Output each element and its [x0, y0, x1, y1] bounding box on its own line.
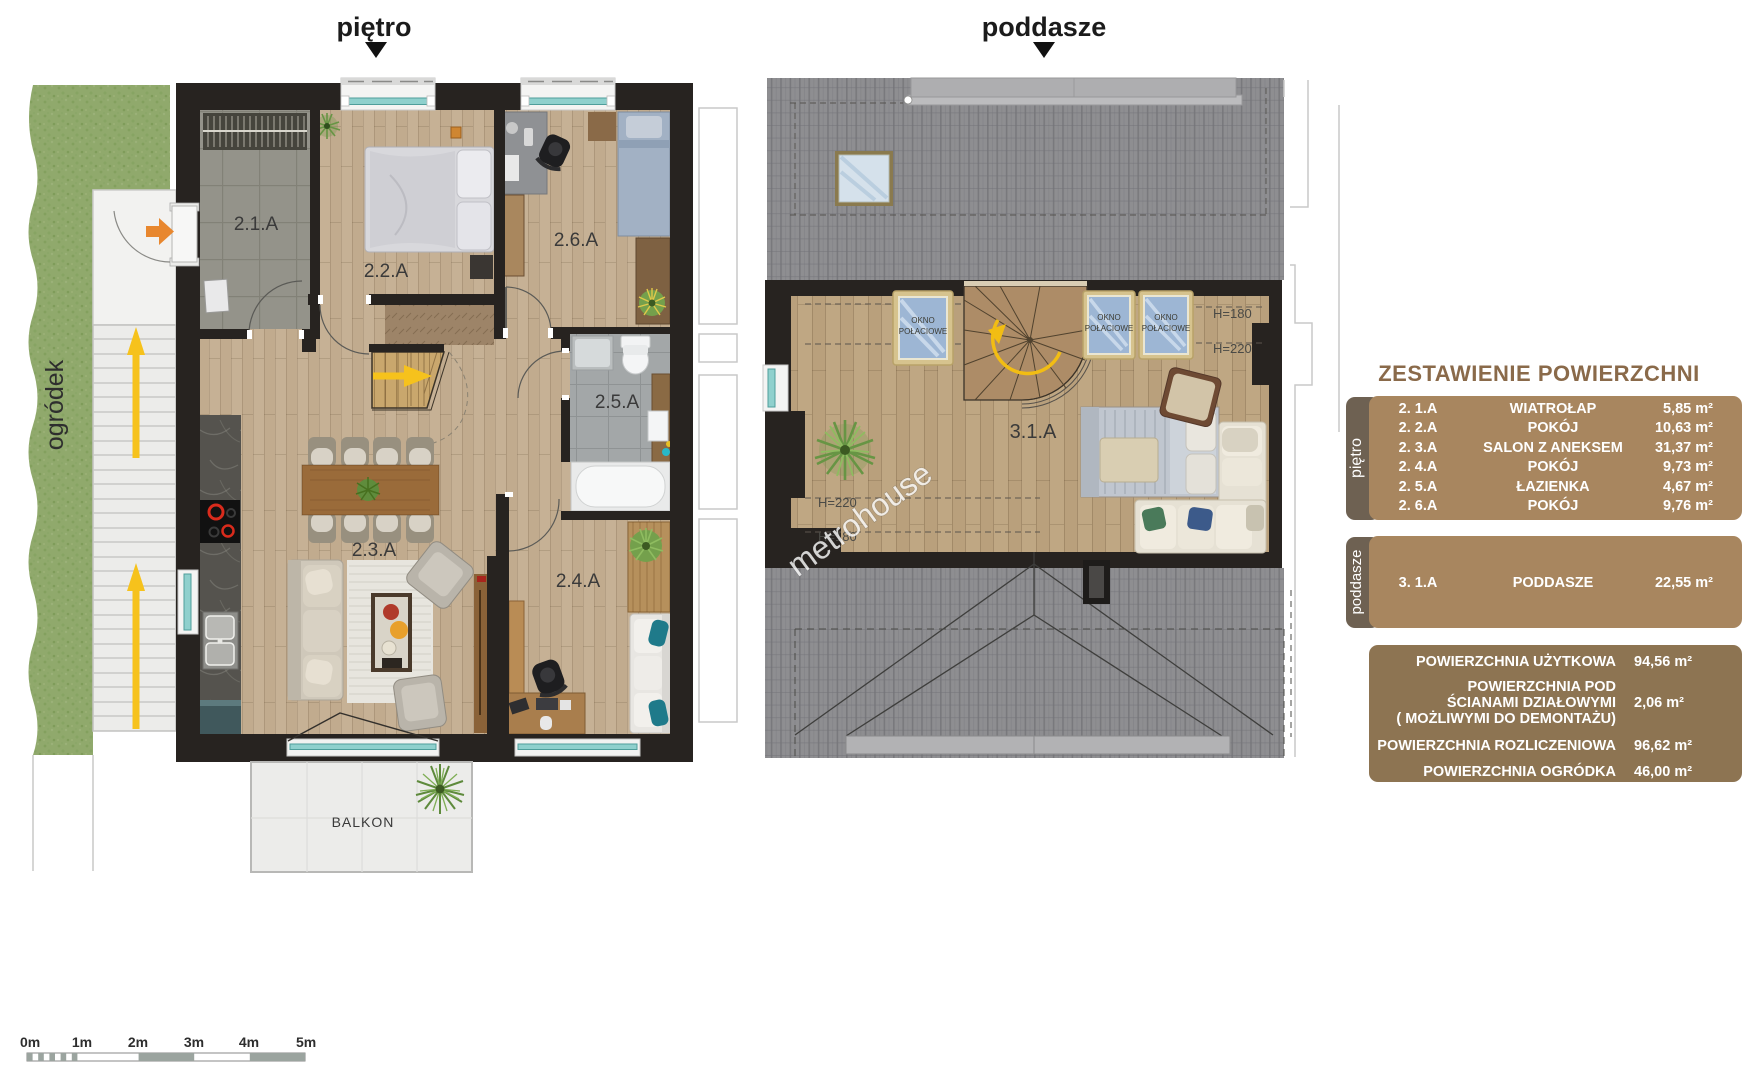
svg-text:2.2.A: 2.2.A	[364, 261, 409, 282]
svg-text:4,67 m²: 4,67 m²	[1663, 479, 1713, 495]
svg-text:POKÓJ: POKÓJ	[1528, 496, 1579, 514]
svg-text:3. 1.A: 3. 1.A	[1399, 575, 1438, 591]
svg-text:SALON Z ANEKSEM: SALON Z ANEKSEM	[1483, 440, 1623, 456]
svg-text:2. 1.A: 2. 1.A	[1399, 401, 1438, 417]
svg-text:POWIERZCHNIA OGRÓDKA: POWIERZCHNIA OGRÓDKA	[1423, 762, 1616, 780]
svg-text:OKNO: OKNO	[911, 316, 935, 325]
svg-text:ŚCIANAMI DZIAŁOWYMI: ŚCIANAMI DZIAŁOWYMI	[1447, 693, 1616, 711]
svg-text:10,63 m²: 10,63 m²	[1655, 420, 1713, 436]
svg-text:POŁACIOWE: POŁACIOWE	[1142, 324, 1190, 333]
svg-text:H=180: H=180	[1213, 306, 1252, 321]
svg-text:31,37 m²: 31,37 m²	[1655, 440, 1713, 456]
svg-text:2. 6.A: 2. 6.A	[1399, 498, 1438, 514]
svg-text:OKNO: OKNO	[1154, 313, 1178, 322]
svg-text:piętro: piętro	[336, 12, 411, 42]
svg-text:POWIERZCHNIA POD: POWIERZCHNIA POD	[1468, 679, 1617, 695]
svg-text:1m: 1m	[72, 1034, 92, 1050]
svg-text:96,62 m²: 96,62 m²	[1634, 738, 1692, 754]
svg-text:ŁAZIENKA: ŁAZIENKA	[1516, 479, 1590, 495]
svg-text:2.3.A: 2.3.A	[352, 540, 397, 561]
svg-text:0m: 0m	[20, 1034, 40, 1050]
svg-text:H=220: H=220	[1213, 341, 1252, 356]
svg-text:3m: 3m	[184, 1034, 204, 1050]
svg-text:94,56 m²: 94,56 m²	[1634, 654, 1692, 670]
svg-text:5m: 5m	[296, 1034, 316, 1050]
svg-text:POŁACIOWE: POŁACIOWE	[899, 327, 947, 336]
svg-text:2.6.A: 2.6.A	[554, 230, 599, 251]
svg-text:46,00 m²: 46,00 m²	[1634, 764, 1692, 780]
svg-text:POWIERZCHNIA ROZLICZENIOWA: POWIERZCHNIA ROZLICZENIOWA	[1377, 738, 1616, 754]
svg-text:ZESTAWIENIE POWIERZCHNI: ZESTAWIENIE POWIERZCHNI	[1378, 361, 1700, 386]
svg-text:POŁACIOWE: POŁACIOWE	[1085, 324, 1133, 333]
svg-text:BALKON: BALKON	[332, 814, 395, 830]
svg-text:piętro: piętro	[1348, 438, 1365, 478]
svg-text:poddasze: poddasze	[1348, 549, 1365, 614]
svg-text:9,73 m²: 9,73 m²	[1663, 459, 1713, 475]
svg-text:WIATROŁAP: WIATROŁAP	[1510, 401, 1597, 417]
svg-text:5,85 m²: 5,85 m²	[1663, 401, 1713, 417]
svg-text:2.1.A: 2.1.A	[234, 214, 279, 235]
svg-text:2,06 m²: 2,06 m²	[1634, 695, 1684, 711]
svg-text:ogródek: ogródek	[41, 359, 69, 450]
svg-text:2m: 2m	[128, 1034, 148, 1050]
svg-text:OKNO: OKNO	[1097, 313, 1121, 322]
svg-text:2. 3.A: 2. 3.A	[1399, 440, 1438, 456]
svg-text:poddasze: poddasze	[982, 12, 1107, 42]
svg-text:2.4.A: 2.4.A	[556, 571, 601, 592]
svg-text:2.5.A: 2.5.A	[595, 392, 640, 413]
svg-text:4m: 4m	[239, 1034, 259, 1050]
svg-text:2. 2.A: 2. 2.A	[1399, 420, 1438, 436]
svg-text:POKÓJ: POKÓJ	[1528, 457, 1579, 475]
svg-text:9,76 m²: 9,76 m²	[1663, 498, 1713, 514]
svg-text:( MOŻLIWYMI DO DEMONTAŻU): ( MOŻLIWYMI DO DEMONTAŻU)	[1396, 710, 1616, 727]
svg-text:POWIERZCHNIA UŻYTKOWA: POWIERZCHNIA UŻYTKOWA	[1416, 653, 1617, 670]
svg-text:PODDASZE: PODDASZE	[1513, 575, 1594, 591]
svg-text:3.1.A: 3.1.A	[1010, 421, 1057, 443]
svg-text:2. 5.A: 2. 5.A	[1399, 479, 1438, 495]
svg-text:POKÓJ: POKÓJ	[1528, 418, 1579, 436]
svg-text:2. 4.A: 2. 4.A	[1399, 459, 1438, 475]
svg-text:22,55 m²: 22,55 m²	[1655, 575, 1713, 591]
